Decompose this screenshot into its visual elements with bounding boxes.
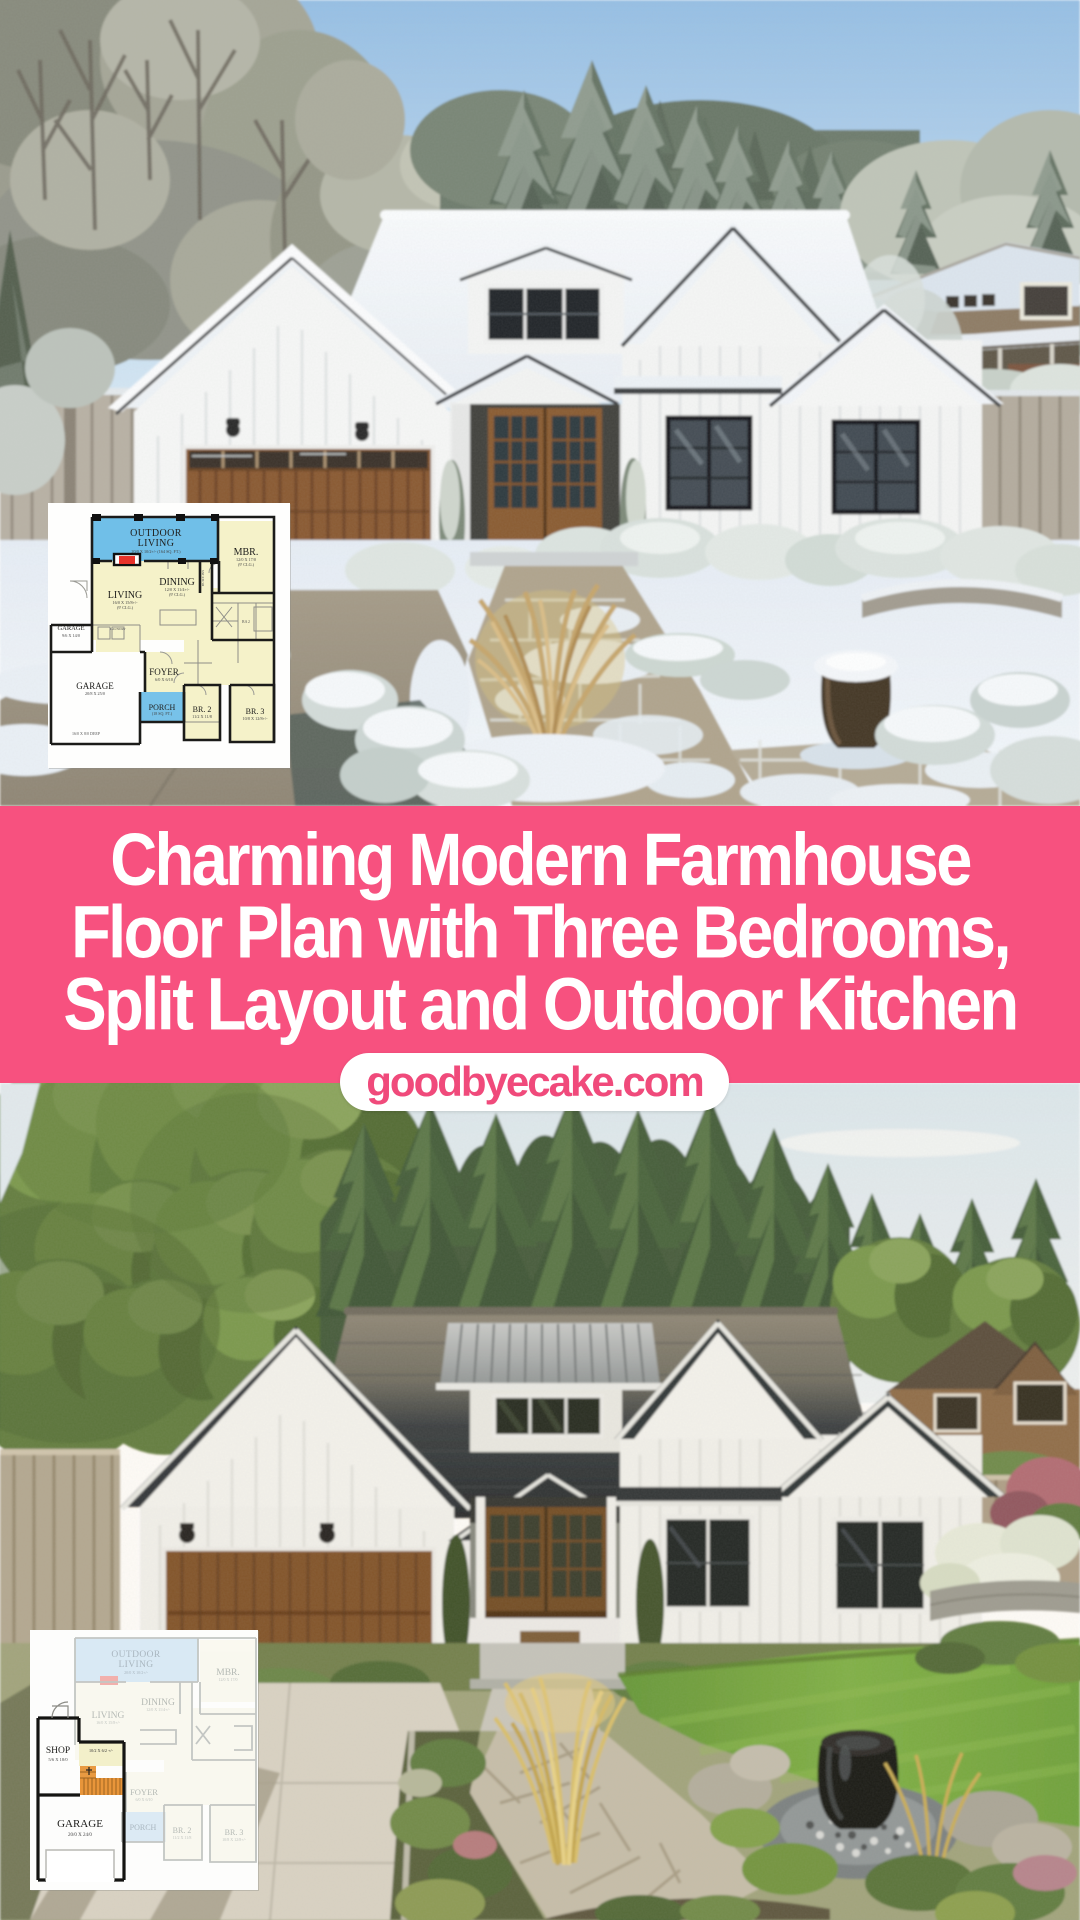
svg-text:BR. 2: BR. 2 bbox=[193, 705, 212, 714]
svg-text:20/0 X 10/2+/-: 20/0 X 10/2+/- bbox=[124, 1670, 148, 1675]
svg-text:FOYER: FOYER bbox=[149, 667, 179, 677]
svg-text:6/0 X 6/10: 6/0 X 6/10 bbox=[135, 1797, 152, 1802]
svg-text:FOYER: FOYER bbox=[130, 1787, 158, 1797]
svg-text:SHOP: SHOP bbox=[46, 1746, 70, 1756]
svg-text:10/8 X 12/8+/-: 10/8 X 12/8+/- bbox=[243, 716, 269, 721]
svg-text:20/0 X 10/2+/- (164 SQ. FT.): 20/0 X 10/2+/- (164 SQ. FT.) bbox=[131, 549, 181, 554]
svg-text:(18 SQ. FT.): (18 SQ. FT.) bbox=[152, 711, 173, 716]
svg-text:(9' CLG.): (9' CLG.) bbox=[238, 562, 255, 567]
svg-text:PORCH: PORCH bbox=[130, 1823, 157, 1832]
svg-text:10/8 X 12/8+/-: 10/8 X 12/8+/- bbox=[222, 1837, 246, 1842]
svg-text:GARAGE: GARAGE bbox=[57, 625, 84, 632]
svg-text:BA 2: BA 2 bbox=[242, 620, 250, 624]
svg-text:16/0 X 8/0 DEEP: 16/0 X 8/0 DEEP bbox=[72, 731, 101, 736]
svg-text:GARAGE: GARAGE bbox=[57, 1818, 103, 1830]
svg-text:BR. 3: BR. 3 bbox=[225, 1828, 244, 1837]
svg-text:11/2 X 11/8: 11/2 X 11/8 bbox=[192, 714, 212, 719]
svg-text:(9' CLG.): (9' CLG.) bbox=[117, 605, 134, 610]
svg-text:11/2 X 11/8: 11/2 X 11/8 bbox=[173, 1835, 192, 1840]
svg-text:12/0 X 11/4+/-: 12/0 X 11/4+/- bbox=[146, 1707, 170, 1712]
svg-text:10/2 X 6/2 +/-: 10/2 X 6/2 +/- bbox=[89, 1748, 113, 1753]
svg-text:20/0 X 24/0: 20/0 X 24/0 bbox=[68, 1833, 92, 1838]
svg-text:16/0 X 15/8+/-: 16/0 X 15/8+/- bbox=[96, 1720, 120, 1725]
svg-text:6/0 X 6/10: 6/0 X 6/10 bbox=[155, 677, 173, 682]
svg-text:20/8 X 25/0: 20/8 X 25/0 bbox=[85, 691, 105, 696]
svg-text:12/0 X 17/0: 12/0 X 17/0 bbox=[218, 1677, 237, 1682]
svg-text:LIVING: LIVING bbox=[118, 1660, 153, 1670]
svg-text:5/6 X 18/0: 5/6 X 18/0 bbox=[48, 1757, 68, 1762]
svg-text:9/6 X 14/0: 9/6 X 14/0 bbox=[62, 633, 80, 638]
svg-text:GARAGE: GARAGE bbox=[76, 681, 114, 691]
svg-text:OUTDOOR: OUTDOOR bbox=[111, 1650, 161, 1660]
svg-text:BR. 2: BR. 2 bbox=[173, 1826, 192, 1835]
svg-text:BR. 3: BR. 3 bbox=[246, 707, 265, 716]
svg-text:LIVING: LIVING bbox=[138, 538, 175, 549]
svg-text:(9' CLG.): (9' CLG.) bbox=[169, 592, 186, 597]
svg-text:BUILT-INS: BUILT-INS bbox=[201, 570, 205, 587]
svg-text:LAUNDRY: LAUNDRY bbox=[110, 627, 126, 631]
